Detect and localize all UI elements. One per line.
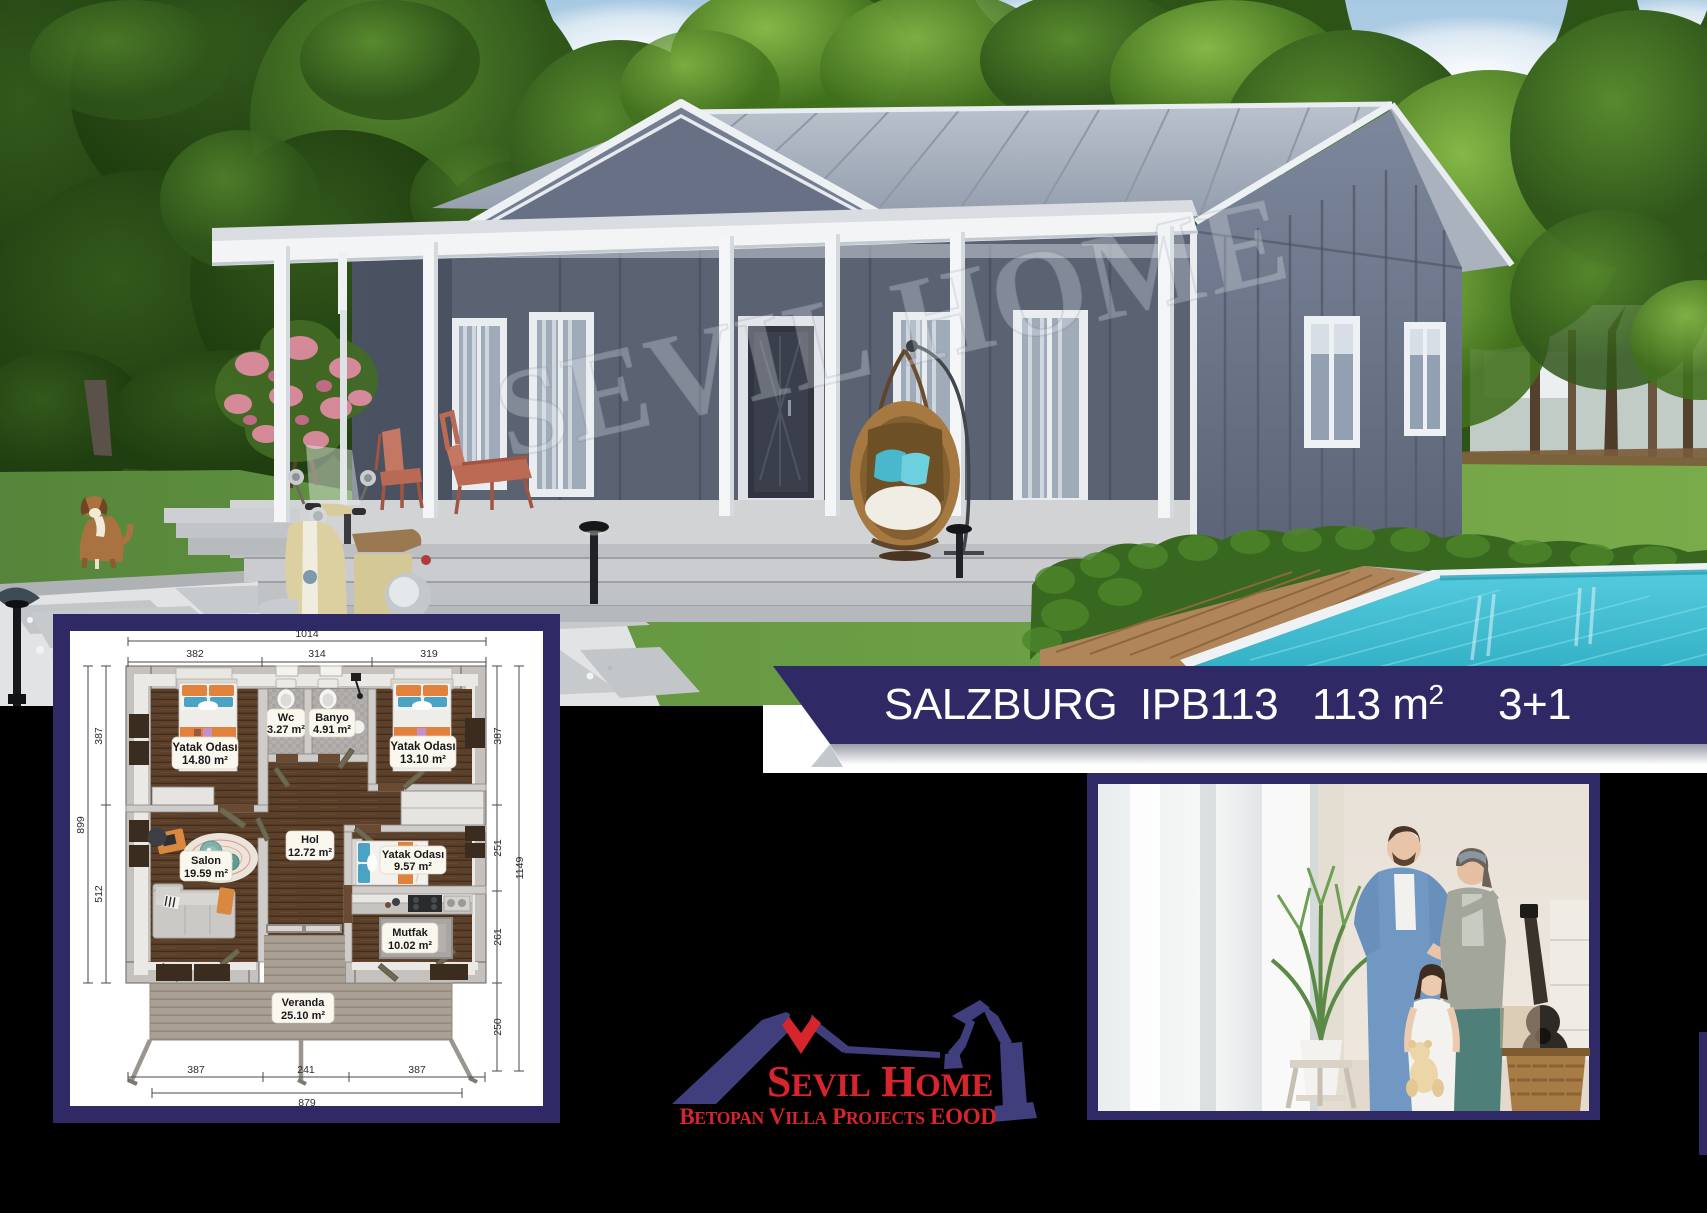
svg-text:387: 387: [93, 727, 105, 745]
svg-text:1014: 1014: [295, 628, 319, 640]
svg-text:512: 512: [93, 885, 105, 903]
svg-text:10.02 m²: 10.02 m²: [388, 940, 432, 952]
svg-text:Wc: Wc: [278, 712, 295, 724]
svg-text:879: 879: [298, 1097, 316, 1109]
svg-text:251: 251: [492, 839, 504, 857]
svg-text:BETOPAN VILLA PROJECTS EOOD: BETOPAN VILLA PROJECTS EOOD: [679, 1104, 996, 1129]
svg-text:Veranda: Veranda: [282, 997, 326, 1009]
svg-text:899: 899: [75, 816, 87, 834]
svg-text:Mutfak: Mutfak: [392, 927, 428, 939]
svg-text:241: 241: [297, 1064, 315, 1076]
svg-text:387: 387: [187, 1064, 205, 1076]
svg-text:12.72 m²: 12.72 m²: [288, 847, 332, 859]
svg-text:261: 261: [492, 928, 504, 946]
svg-text:25.10 m²: 25.10 m²: [281, 1010, 325, 1022]
svg-text:382: 382: [186, 648, 204, 660]
svg-text:Yatak Odası: Yatak Odası: [382, 849, 444, 861]
svg-text:387: 387: [492, 727, 504, 745]
svg-text:9.57 m²: 9.57 m²: [394, 861, 432, 873]
svg-text:319: 319: [420, 648, 438, 660]
svg-text:314: 314: [308, 648, 326, 660]
svg-text:3.27 m²: 3.27 m²: [267, 724, 305, 736]
svg-text:Yatak Odası: Yatak Odası: [172, 742, 237, 754]
svg-text:387: 387: [408, 1064, 426, 1076]
svg-text:13.10 m²: 13.10 m²: [400, 754, 446, 766]
svg-text:Yatak Odası: Yatak Odası: [390, 741, 455, 753]
svg-text:Salon: Salon: [191, 855, 221, 867]
svg-text:4.91 m²: 4.91 m²: [313, 724, 351, 736]
svg-text:250: 250: [492, 1018, 504, 1036]
svg-text:Hol: Hol: [301, 834, 319, 846]
svg-text:14.80 m²: 14.80 m²: [182, 755, 228, 767]
svg-text:19.59 m²: 19.59 m²: [184, 868, 228, 880]
svg-text:1149: 1149: [514, 857, 526, 880]
svg-text:Banyo: Banyo: [315, 712, 349, 724]
